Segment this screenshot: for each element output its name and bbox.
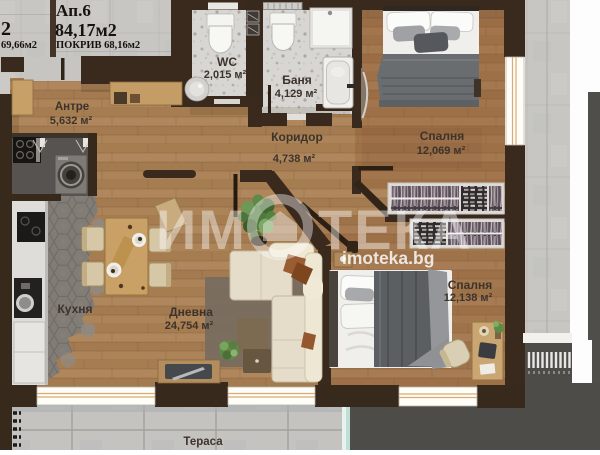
svg-text:2,015 м²: 2,015 м² xyxy=(204,69,247,81)
svg-text:Антре: Антре xyxy=(55,101,89,113)
svg-text:Баня: Баня xyxy=(282,73,312,87)
svg-text:4,738 м²: 4,738 м² xyxy=(273,153,316,165)
svg-text:84,17м2: 84,17м2 xyxy=(55,20,117,40)
svg-text:ИМ: ИМ xyxy=(156,198,247,261)
svg-text:Тераса: Тераса xyxy=(183,436,223,448)
svg-text:12,069 м²: 12,069 м² xyxy=(417,145,466,157)
svg-text:69,66м2: 69,66м2 xyxy=(1,40,37,51)
svg-text:Кухня: Кухня xyxy=(57,302,92,316)
svg-text:24,754 м²: 24,754 м² xyxy=(165,320,214,332)
svg-text:WC: WC xyxy=(217,55,237,69)
svg-text:2: 2 xyxy=(1,18,11,40)
svg-text:5,632 м²: 5,632 м² xyxy=(50,115,93,127)
svg-text:Дневна: Дневна xyxy=(169,305,213,319)
svg-text:4,129 м²: 4,129 м² xyxy=(275,88,318,100)
svg-text:Ап.6: Ап.6 xyxy=(56,1,91,20)
svg-text:12,138 м²: 12,138 м² xyxy=(444,292,493,304)
svg-text:Спалня: Спалня xyxy=(448,278,492,292)
svg-text:ПОКРИВ 68,16м2: ПОКРИВ 68,16м2 xyxy=(56,40,140,51)
svg-text:Коридор: Коридор xyxy=(271,130,323,144)
svg-text:Спалня: Спалня xyxy=(420,129,464,143)
svg-text:imoteka.bg: imoteka.bg xyxy=(342,248,434,268)
